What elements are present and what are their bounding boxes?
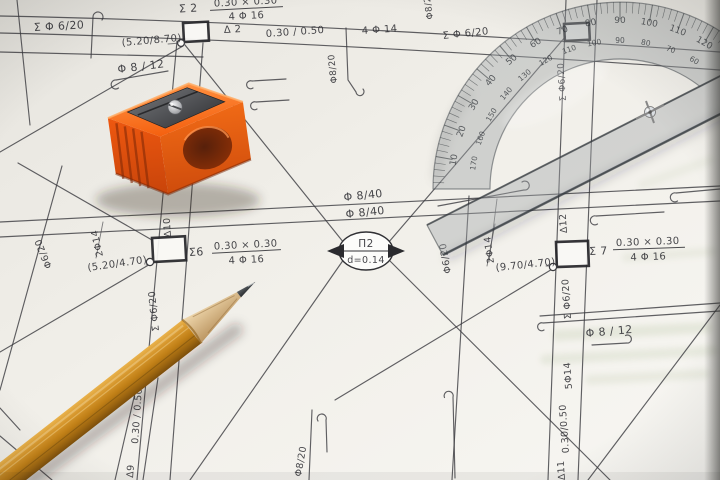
vignette (0, 0, 720, 480)
blueprint-photo: Σ Φ 6/20(5.20/8.70)Φ 8 / 12Δ 20.30 / 0.5… (0, 0, 720, 480)
paper-right-edge (704, 0, 720, 480)
photo-scene: Σ Φ 6/20(5.20/8.70)Φ 8 / 12Δ 20.30 / 0.5… (0, 0, 720, 480)
paper-bottom-edge (0, 472, 720, 480)
